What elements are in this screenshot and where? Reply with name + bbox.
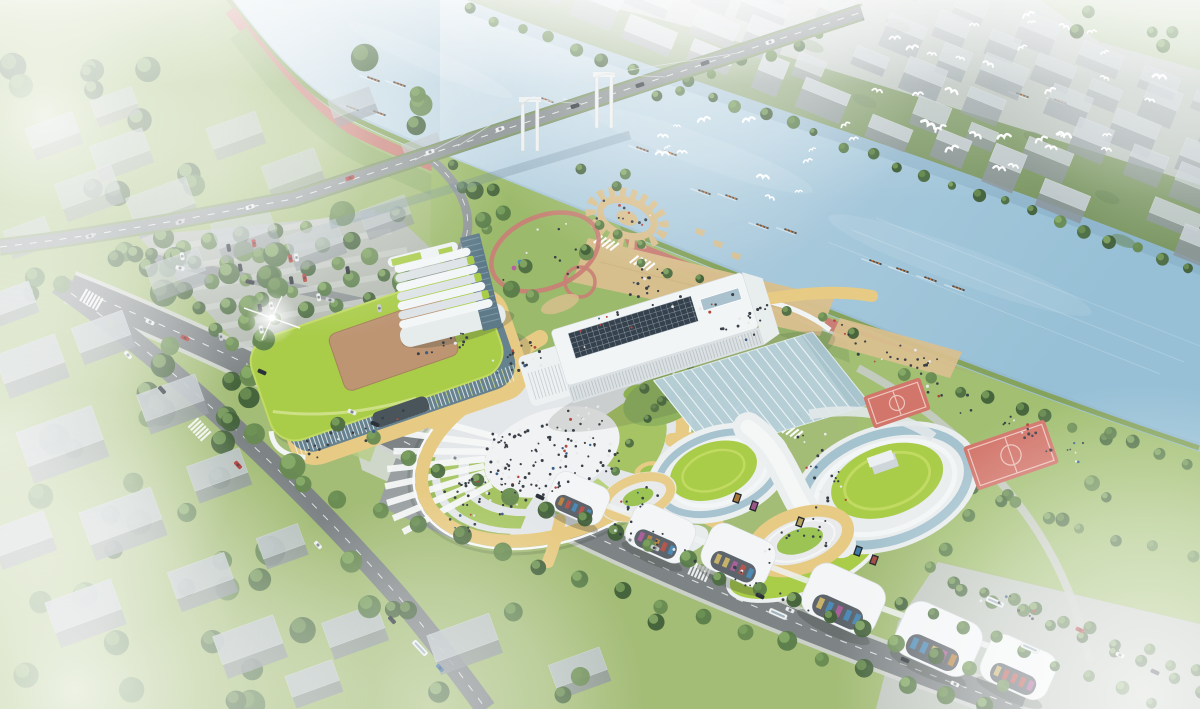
person [372,430,375,433]
person [833,480,835,482]
tree-highlight [948,182,953,187]
person [337,438,339,440]
person [579,423,581,425]
person [431,351,433,353]
person [966,394,969,397]
person [838,471,840,473]
person [534,449,537,452]
person [542,493,545,496]
person [538,350,541,353]
person [747,322,749,324]
person [489,479,491,481]
person [652,531,654,533]
person [815,466,818,469]
person [525,364,528,367]
person [914,349,917,352]
tree-highlight [788,593,796,601]
person [844,333,846,335]
person [459,346,461,348]
person [513,435,516,438]
person [549,473,552,476]
person [601,330,604,333]
tree-highlight [240,388,252,400]
tree-highlight [779,632,790,643]
person [608,449,611,452]
person [585,407,587,409]
person [450,337,452,339]
person [810,466,812,468]
person [530,345,532,347]
person [520,463,522,465]
tree-highlight [281,454,295,468]
person [489,460,492,463]
person [637,492,639,494]
person [502,466,505,469]
tree-highlight [956,387,962,393]
person [837,480,839,482]
person [504,447,506,449]
person [531,450,533,452]
person [462,333,464,335]
person [759,307,762,310]
person [548,478,551,481]
person [575,440,578,443]
person [465,484,468,487]
person [318,448,321,451]
tree-highlight [649,614,658,623]
person [779,592,781,594]
tree-highlight [626,439,631,444]
tree-highlight [504,282,513,291]
person [785,537,787,539]
person [657,290,659,292]
person [464,482,467,485]
tree-highlight [503,489,513,499]
person [764,308,766,310]
person [583,348,585,350]
tree-highlight [782,307,788,313]
person [461,481,464,484]
person [841,324,843,326]
person [916,367,918,369]
person [507,356,509,358]
tree-highlight [825,611,832,618]
person [524,499,527,502]
person [497,460,500,463]
person [598,318,600,320]
person [813,476,816,479]
person [364,439,367,442]
person [599,324,601,326]
person [569,418,572,421]
person [768,548,770,550]
person [381,417,384,420]
person [594,445,596,447]
person [417,352,420,355]
person [565,465,568,468]
person [923,364,926,367]
person [519,435,521,437]
person [559,459,562,462]
person [599,461,602,464]
person [881,358,883,360]
person [936,358,938,360]
tree-highlight [697,610,706,619]
tree-highlight [739,625,748,634]
person [484,481,486,483]
person [766,304,768,306]
tree-highlight [1103,236,1111,244]
person [672,548,675,551]
person [803,535,805,537]
person [630,521,633,524]
person [825,542,827,544]
person [759,320,761,322]
person [812,535,815,538]
person [586,337,589,340]
person [575,452,577,454]
person [316,456,318,458]
person [579,330,581,332]
person [471,478,474,481]
person [764,550,767,553]
person [572,335,574,337]
person [629,293,632,296]
tree-highlight [1028,206,1034,212]
person [733,566,736,569]
person [711,304,713,306]
person [616,452,618,454]
tree-highlight [616,583,625,592]
person [509,354,512,357]
person [645,486,648,489]
person [469,479,471,481]
person [598,423,600,425]
person [819,526,821,528]
person [614,453,617,456]
person [510,362,513,365]
person [807,609,809,611]
person [653,547,655,549]
person [308,452,311,455]
person [739,337,742,340]
tree-highlight [919,170,926,177]
person [805,467,807,469]
person [699,307,702,310]
person [504,442,506,444]
person [529,341,532,344]
person [500,440,502,442]
person [738,317,741,320]
tree-highlight [609,525,618,534]
person [864,340,866,342]
person [534,346,537,349]
aerial-rendering [0,0,1200,709]
person [833,319,836,322]
person [526,429,529,432]
person [516,475,518,477]
person [826,499,829,502]
person [725,328,727,330]
tree-highlight [899,369,906,376]
person [803,441,805,443]
person [747,315,749,317]
person [396,418,398,420]
person [646,292,648,294]
tree-highlight [519,260,527,268]
person [508,433,511,436]
person [756,308,759,311]
person [714,303,716,305]
person [830,474,833,477]
tree-highlight [245,424,257,436]
person [552,467,555,470]
person [517,369,520,372]
person [824,544,827,547]
person [458,482,460,484]
person [745,338,748,341]
person [510,459,512,461]
person [537,480,539,482]
person [622,322,624,324]
person [577,414,579,416]
person [793,556,795,558]
person [636,282,639,285]
person [920,373,922,375]
person [559,259,561,261]
person [614,523,617,526]
tree-highlight [332,418,340,426]
person [535,484,538,487]
person [588,477,591,480]
person [645,287,648,290]
aerial-rendering-stage [0,0,1200,709]
person [630,326,632,328]
person [582,418,585,421]
person [501,481,504,484]
person [643,277,646,280]
person [539,364,542,367]
person [565,452,568,455]
person [748,312,751,315]
person [511,369,513,371]
person [496,372,498,374]
person [524,431,527,434]
person [596,470,599,473]
person [587,330,590,333]
person [708,311,711,314]
person [592,437,594,439]
person [460,333,462,335]
person [557,482,559,484]
person [502,279,504,281]
person [694,560,697,563]
person [626,501,628,503]
person [734,578,736,580]
person [492,360,494,362]
person [532,464,535,467]
person [558,454,560,456]
person [655,540,657,542]
person [535,461,537,463]
tree-highlight [329,491,339,501]
person [835,477,837,479]
person [831,541,834,544]
person [758,593,761,596]
person [904,358,907,361]
person [551,490,553,492]
person [528,472,531,475]
person [826,496,829,499]
person [854,342,856,344]
person [329,431,332,434]
tree-highlight [816,653,824,661]
person [749,584,751,586]
person [840,485,842,487]
person [554,256,557,259]
tree-highlight [1157,253,1164,260]
person [525,252,527,254]
person [815,506,817,508]
person [608,327,611,330]
person [492,447,494,449]
person [637,295,640,298]
person [618,460,620,462]
person [559,466,561,468]
person [589,436,591,438]
person [545,485,548,488]
person [827,493,830,496]
person [605,470,607,472]
person [352,431,355,434]
person [570,440,572,442]
person [501,491,503,493]
person [587,428,590,431]
tree-highlight [848,328,854,334]
person [614,529,617,532]
person [425,351,428,354]
person [557,486,559,488]
person [652,304,654,306]
tree-highlight [402,451,411,460]
person [926,385,929,388]
person [564,455,567,458]
person [630,532,632,534]
person [548,436,551,439]
tree-highlight [655,600,663,608]
tree-highlight [539,503,548,512]
person [797,530,799,532]
person [584,346,586,348]
person [656,494,659,497]
person [522,485,525,488]
person [508,476,511,479]
person [617,313,620,316]
person [620,501,622,503]
person [462,344,464,346]
person [497,469,500,472]
person [532,358,534,360]
person [720,328,723,331]
person [648,285,650,287]
person [641,277,643,279]
person [639,506,641,508]
person [970,409,973,412]
person [486,447,489,450]
tree-highlight [1002,196,1007,201]
person [821,449,824,452]
person [563,450,566,453]
person [508,469,510,471]
tree-highlight [1017,403,1024,410]
person [565,445,568,448]
person [496,379,498,381]
person [519,429,522,432]
person [896,358,898,360]
person [402,409,405,412]
person [936,382,939,385]
person [365,427,367,429]
person [500,478,502,480]
person [314,444,316,446]
person [493,438,496,441]
person [567,410,570,413]
person [596,406,598,408]
person [679,295,682,298]
person [468,482,470,484]
person [960,412,962,414]
person [588,412,590,414]
person [454,342,457,345]
person [619,533,622,536]
tree-highlight [926,373,932,379]
person [940,394,943,397]
person [819,490,822,493]
person [923,357,925,359]
person [522,362,525,365]
person [601,420,603,422]
person [540,453,542,455]
person [549,439,551,441]
person [641,503,643,505]
tree-highlight [1078,226,1086,234]
person [929,360,932,363]
person [507,464,510,467]
person [731,293,734,296]
person [845,499,847,501]
tree-highlight [754,583,762,591]
person [538,443,540,445]
person [641,497,644,500]
tree-highlight [643,539,650,546]
person [327,444,330,447]
person [497,441,499,443]
person [306,440,309,443]
person [737,325,740,328]
person [519,480,521,482]
person [847,333,849,335]
person [609,443,612,446]
person [857,353,860,356]
person [575,445,578,448]
person [561,447,563,449]
person [627,508,629,510]
person [573,429,575,431]
person [567,273,569,275]
tree-highlight [713,573,721,581]
person [824,433,827,436]
person [788,534,791,537]
